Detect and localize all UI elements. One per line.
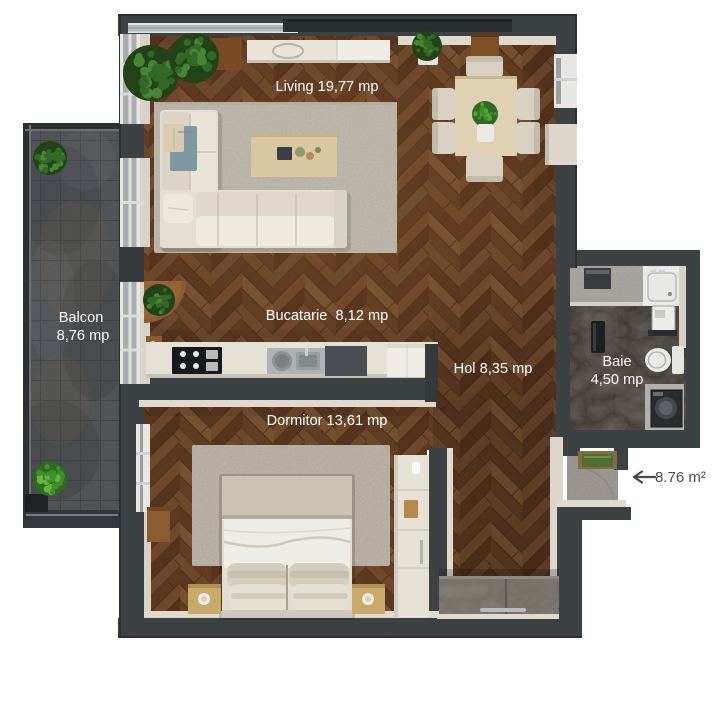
svg-text:8.76 m²: 8.76 m²	[655, 469, 706, 486]
svg-text:Balcon: Balcon	[59, 310, 104, 326]
svg-text:8,76 mp: 8,76 mp	[57, 328, 110, 344]
svg-text:Baie: Baie	[602, 354, 631, 370]
svg-text:Hol 8,35 mp: Hol 8,35 mp	[454, 361, 533, 377]
svg-text:Living 19,77 mp: Living 19,77 mp	[275, 79, 378, 95]
svg-text:Bucatarie 8,12 mp: Bucatarie 8,12 mp	[266, 308, 389, 324]
svg-text:4,50 mp: 4,50 mp	[591, 372, 644, 388]
svg-text:Dormitor 13,61 mp: Dormitor 13,61 mp	[267, 413, 388, 429]
